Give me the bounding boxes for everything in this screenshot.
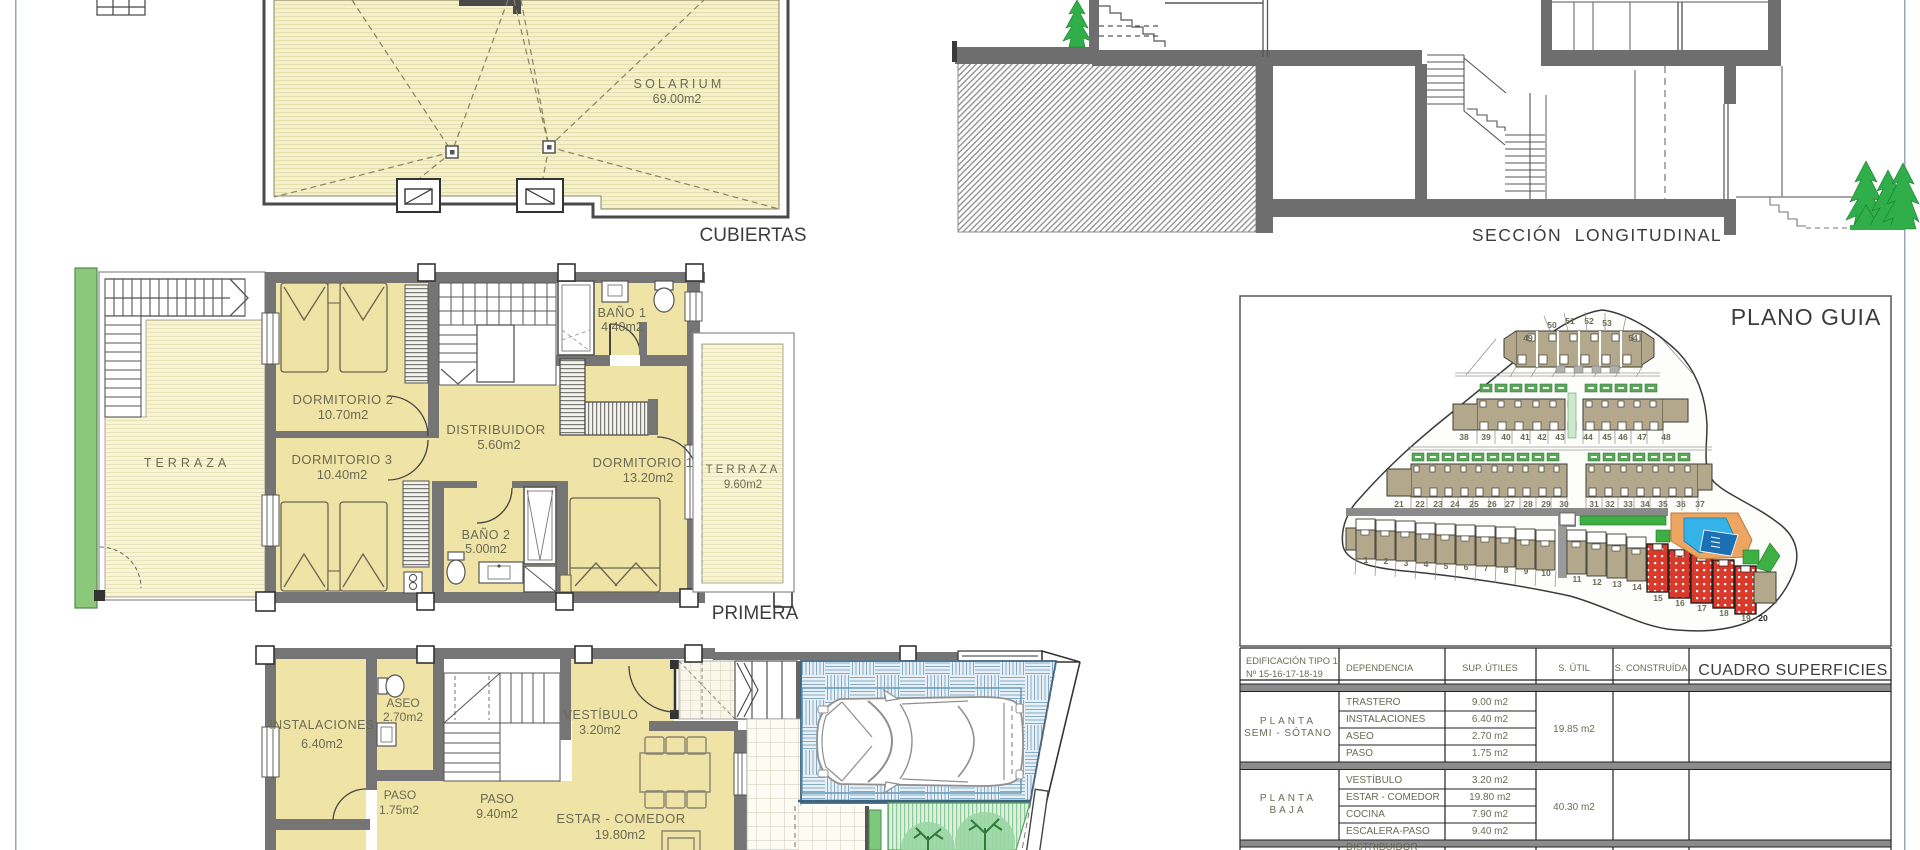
svg-text:39: 39 [1481,432,1491,442]
svg-text:13: 13 [1612,579,1622,589]
svg-text:9.40m2: 9.40m2 [476,807,518,821]
svg-text:12: 12 [1592,577,1602,587]
svg-text:5: 5 [1444,561,1449,571]
svg-text:9.40 m2: 9.40 m2 [1472,826,1509,837]
svg-text:1.75m2: 1.75m2 [379,803,419,817]
svg-text:DORMITORIO 1: DORMITORIO 1 [592,455,693,470]
svg-text:15: 15 [1653,593,1663,603]
svg-text:4.40m2: 4.40m2 [601,320,643,334]
svg-text:2.70m2: 2.70m2 [383,710,423,724]
svg-text:TERRAZA: TERRAZA [144,456,230,470]
svg-text:Nº 15-16-17-18-19: Nº 15-16-17-18-19 [1246,669,1323,679]
svg-text:10.40m2: 10.40m2 [317,467,368,482]
svg-text:BAÑO 2: BAÑO 2 [462,528,511,542]
svg-text:DISTRIBUIDOR: DISTRIBUIDOR [446,422,545,437]
svg-text:19: 19 [1741,613,1751,623]
svg-text:9.00 m2: 9.00 m2 [1472,697,1509,708]
svg-text:SOLARIUM: SOLARIUM [634,77,725,91]
svg-text:CUADRO SUPERFICIES: CUADRO SUPERFICIES [1698,662,1887,679]
svg-text:PASO: PASO [384,788,416,802]
svg-text:BAÑO 1: BAÑO 1 [598,306,647,320]
svg-text:32: 32 [1605,499,1615,509]
svg-text:DEPENDENCIA: DEPENDENCIA [1346,663,1414,673]
svg-text:SUP. ÚTILES: SUP. ÚTILES [1462,663,1518,673]
svg-text:30: 30 [1559,499,1569,509]
svg-text:DISTRIBUIDOR: DISTRIBUIDOR [1346,842,1418,850]
svg-text:7: 7 [1484,563,1489,573]
svg-text:6.40 m2: 6.40 m2 [1472,714,1509,725]
svg-text:1.75 m2: 1.75 m2 [1472,748,1509,759]
svg-text:38: 38 [1459,432,1469,442]
svg-text:TRASTERO: TRASTERO [1346,697,1401,708]
svg-text:PASO: PASO [480,792,514,806]
svg-text:INSTALACIONES: INSTALACIONES [269,718,375,732]
svg-text:35: 35 [1658,499,1668,509]
svg-text:9.60m2: 9.60m2 [724,479,762,491]
svg-text:PASO: PASO [1346,748,1373,759]
svg-text:TERRAZA: TERRAZA [706,464,781,476]
svg-text:49: 49 [1523,333,1533,343]
svg-text:34: 34 [1640,499,1650,509]
svg-text:18: 18 [1719,608,1729,618]
svg-text:37: 37 [1695,499,1705,509]
svg-text:6: 6 [1464,562,1469,572]
svg-text:3: 3 [1404,558,1409,568]
svg-text:ESTAR - COMEDOR: ESTAR - COMEDOR [556,811,685,826]
svg-text:PLANTA: PLANTA [1260,716,1316,727]
svg-text:19.80 m2: 19.80 m2 [1469,792,1511,803]
svg-text:VESTÍBULO: VESTÍBULO [564,707,639,722]
svg-text:SECCIÓN LONGITUDINAL: SECCIÓN LONGITUDINAL [1472,224,1722,245]
svg-text:28: 28 [1523,499,1533,509]
svg-text:44: 44 [1583,432,1593,442]
svg-text:DORMITORIO 2: DORMITORIO 2 [292,392,393,407]
svg-text:PLANTA: PLANTA [1260,793,1316,804]
svg-text:ASEO: ASEO [1346,731,1374,742]
svg-text:14: 14 [1632,582,1642,592]
svg-text:17: 17 [1697,603,1707,613]
svg-text:PRIMERA: PRIMERA [712,603,799,624]
svg-text:45: 45 [1602,432,1612,442]
svg-text:9: 9 [1524,566,1529,576]
svg-text:33: 33 [1623,499,1633,509]
svg-text:SEMI - SÓTANO: SEMI - SÓTANO [1244,726,1332,739]
svg-text:47: 47 [1637,432,1647,442]
svg-text:11: 11 [1573,574,1582,584]
svg-text:COCINA: COCINA [1346,809,1385,820]
svg-text:29: 29 [1541,499,1551,509]
svg-text:EDIFICACIÓN TIPO 1: EDIFICACIÓN TIPO 1 [1246,656,1338,666]
svg-text:INSTALACIONES: INSTALACIONES [1346,714,1426,725]
svg-text:1: 1 [1364,555,1369,565]
svg-text:31: 31 [1589,499,1599,509]
svg-text:22: 22 [1415,499,1425,509]
svg-text:2.70 m2: 2.70 m2 [1472,731,1509,742]
svg-text:43: 43 [1555,432,1565,442]
svg-text:36: 36 [1676,499,1686,509]
svg-text:BAJA: BAJA [1269,805,1306,816]
svg-text:7.90 m2: 7.90 m2 [1472,809,1509,820]
svg-text:20: 20 [1758,613,1768,623]
svg-text:10.70m2: 10.70m2 [318,407,369,422]
svg-text:VESTÍBULO: VESTÍBULO [1346,773,1402,786]
svg-text:8: 8 [1504,565,1509,575]
svg-text:CUBIERTAS: CUBIERTAS [700,225,807,246]
svg-text:ASEO: ASEO [386,696,419,710]
svg-text:46: 46 [1618,432,1628,442]
svg-text:41: 41 [1520,432,1530,442]
svg-text:19.80m2: 19.80m2 [595,827,646,842]
svg-text:16: 16 [1675,598,1685,608]
svg-text:24: 24 [1450,499,1460,509]
svg-text:69.00m2: 69.00m2 [653,92,702,106]
svg-text:S. CONSTRUÍDA: S. CONSTRUÍDA [1615,663,1689,673]
svg-text:S. ÚTIL: S. ÚTIL [1558,663,1590,673]
svg-text:6.40m2: 6.40m2 [301,737,343,751]
svg-text:3.20m2: 3.20m2 [579,723,621,737]
svg-text:21: 21 [1394,499,1404,509]
svg-text:40.30 m2: 40.30 m2 [1553,802,1595,813]
svg-text:25: 25 [1469,499,1479,509]
svg-text:13.20m2: 13.20m2 [623,470,674,485]
svg-text:40: 40 [1501,432,1511,442]
svg-text:2: 2 [1384,556,1389,566]
svg-text:4: 4 [1424,559,1429,569]
svg-text:54: 54 [1628,333,1638,343]
svg-text:5.00m2: 5.00m2 [465,542,507,556]
svg-text:10: 10 [1541,568,1551,578]
svg-text:19.85 m2: 19.85 m2 [1553,724,1595,735]
svg-text:5.60m2: 5.60m2 [477,437,520,452]
svg-text:ESTAR - COMEDOR: ESTAR - COMEDOR [1346,792,1440,803]
svg-text:53: 53 [1602,318,1612,328]
svg-text:ESCALERA-PASO: ESCALERA-PASO [1346,826,1430,837]
svg-text:23: 23 [1433,499,1443,509]
svg-text:27: 27 [1505,499,1515,509]
svg-text:PLANO GUIA: PLANO GUIA [1731,304,1882,330]
svg-text:42: 42 [1537,432,1547,442]
svg-text:DORMITORIO 3: DORMITORIO 3 [291,452,392,467]
svg-text:3.20 m2: 3.20 m2 [1472,775,1509,786]
